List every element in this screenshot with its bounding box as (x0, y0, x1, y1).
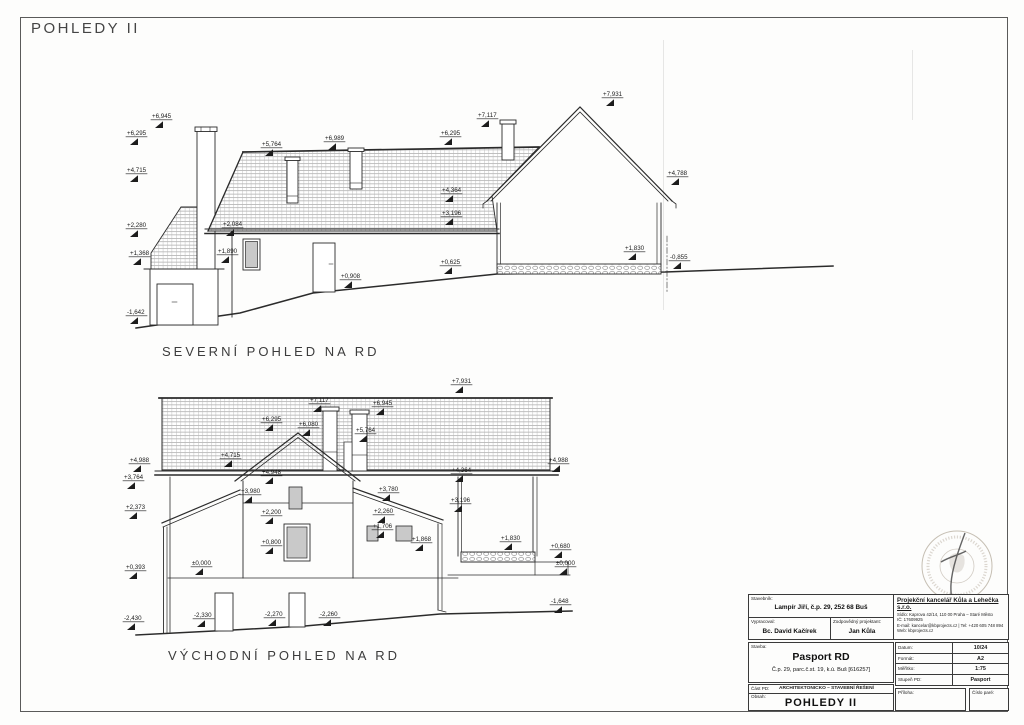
elevation-marker: +7,117 (477, 112, 498, 127)
svg-text:+6,295: +6,295 (441, 130, 461, 137)
svg-text:+2,280: +2,280 (127, 222, 147, 229)
gable-chimney (502, 124, 514, 160)
client-value: Lampír Jiří, č.p. 29, 252 68 Buš (749, 604, 893, 611)
svg-text:+4,988: +4,988 (549, 457, 569, 464)
svg-text:+5,764: +5,764 (356, 427, 376, 434)
elevation-marker: +4,988 (548, 457, 569, 472)
elevation-marker: +7,931 (451, 378, 472, 393)
elevation-marker: +4,988 (129, 457, 150, 472)
basement-door (215, 593, 233, 631)
date-label: Datum: (898, 645, 913, 650)
svg-text:+4,715: +4,715 (221, 452, 241, 459)
elevation-marker: +0,625 (440, 259, 461, 274)
svg-text:-0,855: -0,855 (670, 254, 688, 261)
chimney (197, 131, 215, 269)
svg-text:+6,989: +6,989 (325, 135, 345, 142)
svg-text:+5,764: +5,764 (262, 141, 282, 148)
engineer-value: Jan Kůla (831, 628, 893, 635)
svg-text:-2,260: -2,260 (320, 611, 338, 618)
svg-text:+3,764: +3,764 (124, 474, 144, 481)
meta-row-stage: Stupeň PD: Pasport (896, 675, 1008, 686)
elevation-marker: +6,295 (440, 130, 461, 145)
content-cell: Část PD: ARCHITEKTONICKO – STAVEBNÍ ŘEŠE… (748, 684, 894, 711)
svg-text:+4,364: +4,364 (442, 187, 462, 194)
annex-roof-hatched (151, 207, 197, 269)
annex-door (157, 284, 193, 325)
elevation-marker: +0,800 (261, 539, 282, 554)
gravel-strip (497, 264, 661, 274)
client-cell: Stavebník: Lampír Jiří, č.p. 29, 252 68 … (748, 594, 894, 618)
svg-text:+1,830: +1,830 (501, 535, 521, 542)
scale-label: Měřítko: (898, 666, 915, 671)
gable-window (289, 487, 302, 509)
format-value: A2 (953, 656, 1008, 662)
elevation-marker: +0,908 (340, 273, 361, 288)
project-name: Pasport RD (749, 651, 893, 663)
elevation-marker: +4,788 (667, 170, 688, 185)
attachment-label: Příloha: (898, 690, 914, 695)
drawing-label-north: SEVERNÍ POHLED NA RD (162, 344, 380, 359)
author-label: Vypracoval: (751, 619, 775, 624)
elevation-marker: -0,855 (669, 254, 690, 269)
meta-table: Datum: 10/24 Formát: A2 Měřítko: 1:75 St… (895, 642, 1009, 686)
content-value: POHLEDY II (749, 697, 893, 709)
svg-text:+4,988: +4,988 (130, 457, 150, 464)
elevation-marker: +2,373 (125, 504, 146, 519)
svg-text:+7,117: +7,117 (310, 397, 329, 404)
date-value: 10/24 (953, 645, 1008, 651)
part-label: Část PD: (751, 686, 769, 691)
attachment-cell: Příloha: (895, 688, 966, 711)
svg-text:-1,648: -1,648 (551, 598, 569, 605)
svg-text:+6,295: +6,295 (127, 130, 147, 137)
elevation-marker: +4,948 (261, 469, 282, 484)
elevation-marker: +0,393 (125, 564, 146, 579)
north-elevation: SEVERNÍ POHLED NA RD +6,945+6,295+4,715+… (126, 91, 833, 359)
chimney (352, 414, 367, 471)
entry-door (313, 243, 335, 292)
elevation-marker: -2,330 (193, 612, 214, 627)
project-cell: Stavba: Pasport RD Č.p. 29, parc.č.st. 1… (748, 642, 894, 683)
basement-door (289, 593, 305, 627)
stage-label: Stupeň PD: (898, 677, 922, 682)
svg-text:+0,680: +0,680 (551, 543, 571, 550)
elevation-marker: +3,764 (123, 474, 144, 489)
svg-text:+6,945: +6,945 (152, 113, 172, 120)
elevation-marker: +2,200 (261, 509, 282, 524)
svg-text:+4,948: +4,948 (262, 469, 282, 476)
elevation-marker: +0,680 (550, 543, 571, 558)
svg-text:-2,430: -2,430 (124, 615, 142, 622)
copy-number-label: Číslo paré: (972, 690, 994, 695)
company-cell: Projekční kancelář Kůla a Lehečka s.r.o.… (893, 594, 1009, 640)
elevation-marker: +1,830 (500, 535, 521, 550)
svg-text:+6,080: +6,080 (299, 421, 319, 428)
scale-value: 1:75 (953, 666, 1008, 672)
elevation-marker: +3,780 (378, 486, 399, 501)
drawing-label-east: VÝCHODNÍ POHLED NA RD (168, 648, 400, 663)
small-window (396, 526, 412, 541)
svg-text:+4,788: +4,788 (668, 170, 688, 177)
elevation-marker: +4,715 (126, 167, 147, 182)
elevation-marker: -2,270 (264, 611, 285, 626)
main-roof-hatched (208, 147, 539, 231)
svg-text:+0,800: +0,800 (262, 539, 282, 546)
elevation-marker: -1,642 (126, 309, 147, 324)
svg-text:+6,945: +6,945 (373, 400, 393, 407)
svg-text:+2,084: +2,084 (223, 221, 243, 228)
svg-text:+4,364: +4,364 (452, 467, 472, 474)
svg-text:+3,196: +3,196 (442, 210, 462, 217)
part-value: ARCHITEKTONICKO – STAVEBNÍ ŘEŠENÍ (779, 686, 874, 691)
svg-text:+1,368: +1,368 (130, 250, 150, 257)
company-web: Web: kbprojects.cz (897, 628, 1005, 633)
east-elevation: VÝCHODNÍ POHLED NA RD +7,931+7,117+6,945… (123, 378, 576, 663)
svg-text:+2,260: +2,260 (374, 508, 394, 515)
vent (344, 442, 352, 471)
svg-text:+1,890: +1,890 (218, 248, 238, 255)
meta-row-date: Datum: 10/24 (896, 643, 1008, 654)
elevation-marker: -2,430 (123, 615, 144, 630)
svg-text:+2,373: +2,373 (126, 504, 146, 511)
elevation-marker: +7,931 (602, 91, 623, 106)
svg-text:-1,642: -1,642 (127, 309, 145, 316)
client-label: Stavebník: (751, 596, 773, 601)
company-name: Projekční kancelář Kůla a Lehečka s.r.o. (897, 597, 1005, 611)
svg-text:+1,706: +1,706 (373, 523, 393, 530)
format-label: Formát: (898, 656, 914, 661)
elevation-marker: +2,260 (373, 508, 394, 523)
project-label: Stavba: (751, 644, 767, 649)
svg-text:+7,931: +7,931 (452, 378, 472, 385)
engineer-label: Zodpovědný projektant: (833, 619, 881, 624)
elevation-marker: +6,945 (151, 113, 172, 128)
stage-value: Pasport (953, 677, 1008, 683)
svg-text:+1,830: +1,830 (625, 245, 645, 252)
elevation-marker: +1,368 (129, 250, 150, 265)
svg-text:+1,868: +1,868 (412, 536, 432, 543)
elevation-marker: ±0,000 (555, 560, 576, 575)
elevation-marker: +1,868 (411, 536, 432, 551)
engineer-cell: Zodpovědný projektant: Jan Kůla (830, 617, 894, 640)
copy-number-cell: Číslo paré: (969, 688, 1009, 711)
meta-row-scale: Měřítko: 1:75 (896, 664, 1008, 675)
author-value: Bc. David Kačírek (749, 628, 830, 635)
svg-text:-2,270: -2,270 (265, 611, 283, 618)
svg-text:+6,295: +6,295 (262, 416, 282, 423)
terrain-line (136, 266, 833, 328)
drawing-sheet: POHLEDY II (0, 0, 1024, 725)
svg-text:-2,330: -2,330 (194, 612, 212, 619)
svg-text:±0,000: ±0,000 (556, 560, 575, 567)
project-detail: Č.p. 29, parc.č.st. 19, k.ú. Buš [616257… (749, 667, 893, 673)
svg-text:+2,200: +2,200 (262, 509, 282, 516)
svg-text:+0,393: +0,393 (126, 564, 146, 571)
elevation-marker: +2,280 (126, 222, 147, 237)
elevation-marker: ±0,000 (191, 560, 212, 575)
svg-text:+3,780: +3,780 (379, 486, 399, 493)
roof-chimney (287, 160, 298, 203)
svg-text:±0,000: ±0,000 (192, 560, 211, 567)
elevation-marker: +1,830 (624, 245, 645, 260)
elevation-marker: +1,890 (217, 248, 238, 263)
author-cell: Vypracoval: Bc. David Kačírek (748, 617, 831, 640)
svg-text:+3,980: +3,980 (241, 488, 261, 495)
svg-text:+0,908: +0,908 (341, 273, 361, 280)
meta-row-format: Formát: A2 (896, 654, 1008, 665)
elevation-marker: +6,989 (324, 135, 345, 150)
title-block: Stavebník: Lampír Jiří, č.p. 29, 252 68 … (748, 594, 1009, 711)
svg-text:+7,931: +7,931 (603, 91, 623, 98)
elevation-marker: +6,295 (126, 130, 147, 145)
elevation-marker: +3,196 (450, 497, 471, 512)
svg-text:+7,117: +7,117 (478, 112, 497, 119)
gravel-strip (461, 552, 535, 562)
svg-text:+3,196: +3,196 (451, 497, 471, 504)
svg-text:+4,715: +4,715 (127, 167, 147, 174)
svg-text:+0,625: +0,625 (441, 259, 461, 266)
